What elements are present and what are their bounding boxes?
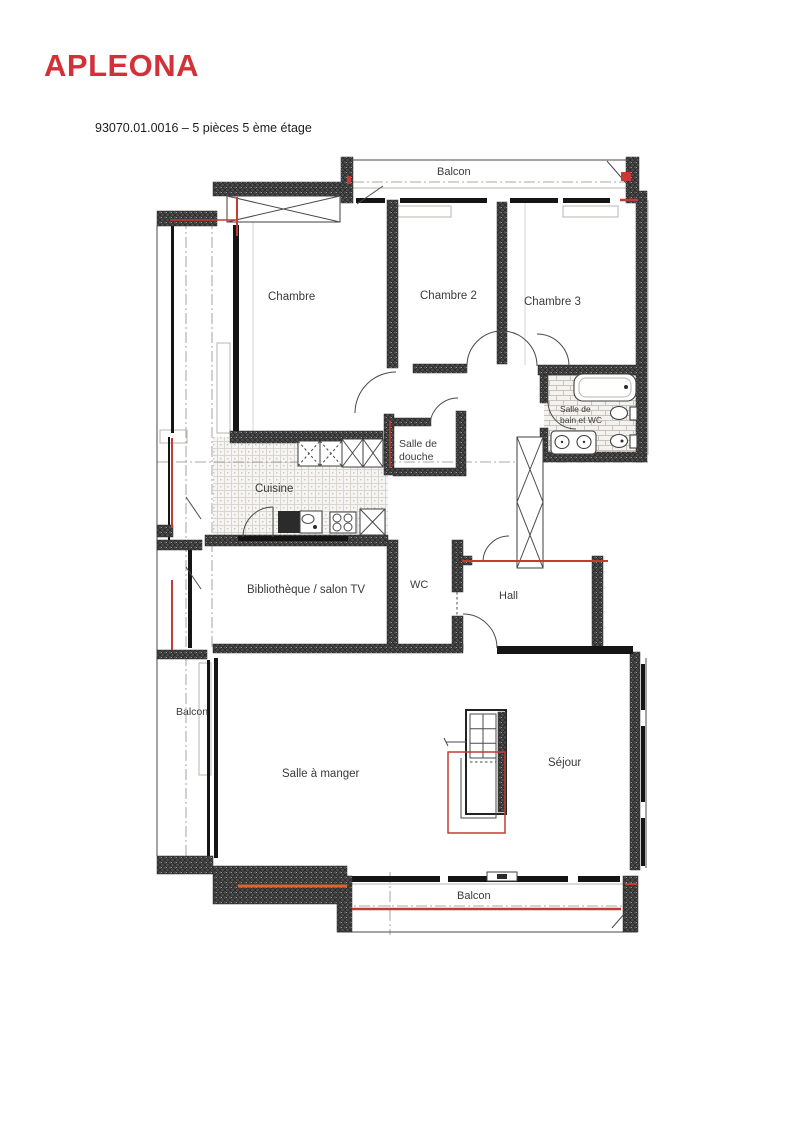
room-label-wc: WC <box>410 579 428 592</box>
room-label-chambre-3: Chambre 3 <box>524 296 581 309</box>
room-label-chambre-2: Chambre 2 <box>420 290 477 303</box>
room-label-balcon-left: Balcon <box>176 706 208 719</box>
fireplace <box>444 710 506 818</box>
room-label-balcon-top: Balcon <box>437 166 471 179</box>
room-label-salle-de-douche: Salle de douche <box>399 438 437 464</box>
room-label-hall: Hall <box>499 590 518 603</box>
room-label-salle-de-bain: Salle de bain et WC <box>560 404 602 426</box>
salle-de-bain-line2: bain et WC <box>560 415 602 426</box>
room-label-balcon-bottom: Balcon <box>457 890 491 903</box>
room-label-chambre: Chambre <box>268 291 315 304</box>
room-label-salle-a-manger: Salle à manger <box>282 768 359 781</box>
salle-de-douche-line1: Salle de <box>399 438 437 451</box>
document-page: APLEONA 93070.01.0016 – 5 pièces 5 ème é… <box>0 0 800 1131</box>
axis-lines <box>157 182 648 935</box>
salle-de-douche-line2: douche <box>399 451 437 464</box>
room-label-sejour: Séjour <box>548 757 581 770</box>
salle-de-bain-line1: Salle de <box>560 404 602 415</box>
room-label-cuisine: Cuisine <box>255 483 293 496</box>
walls <box>157 157 647 932</box>
room-label-bibliotheque: Bibliothèque / salon TV <box>247 584 365 597</box>
floor-plan-drawing <box>0 0 800 1131</box>
